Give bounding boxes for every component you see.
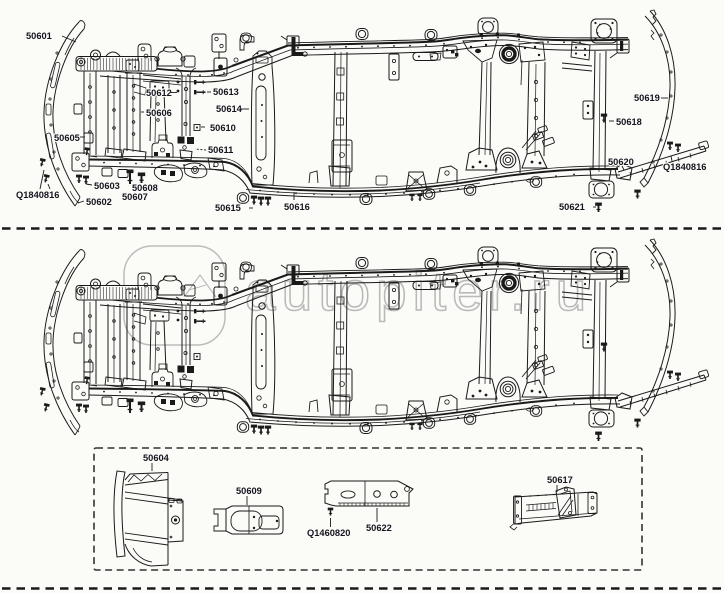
svg-text:50607: 50607 (122, 192, 148, 202)
svg-text:50621: 50621 (559, 202, 585, 212)
svg-text:50618: 50618 (616, 117, 642, 127)
svg-text:50616: 50616 (284, 202, 310, 212)
svg-text:50617: 50617 (547, 475, 573, 485)
svg-text:Q1840816: Q1840816 (663, 162, 706, 172)
svg-text:50622: 50622 (366, 523, 392, 533)
svg-text:50608: 50608 (132, 183, 158, 193)
svg-text:50612: 50612 (146, 88, 172, 98)
svg-text:50610: 50610 (210, 123, 236, 133)
svg-text:50609: 50609 (236, 486, 262, 496)
svg-text:50614: 50614 (216, 104, 243, 114)
svg-text:50606: 50606 (146, 108, 172, 118)
svg-text:50603: 50603 (94, 181, 120, 191)
svg-text:50620: 50620 (608, 157, 634, 167)
svg-text:Q1460820: Q1460820 (307, 528, 350, 538)
svg-text:50619: 50619 (634, 93, 660, 103)
svg-text:50601: 50601 (26, 31, 52, 41)
svg-text:50605: 50605 (54, 133, 80, 143)
svg-text:Q1840816: Q1840816 (16, 190, 59, 200)
svg-text:50611: 50611 (208, 145, 233, 155)
svg-text:50613: 50613 (213, 87, 239, 97)
svg-text:50604: 50604 (143, 453, 170, 463)
svg-text:50615: 50615 (215, 203, 241, 213)
svg-text:50602: 50602 (86, 197, 112, 207)
